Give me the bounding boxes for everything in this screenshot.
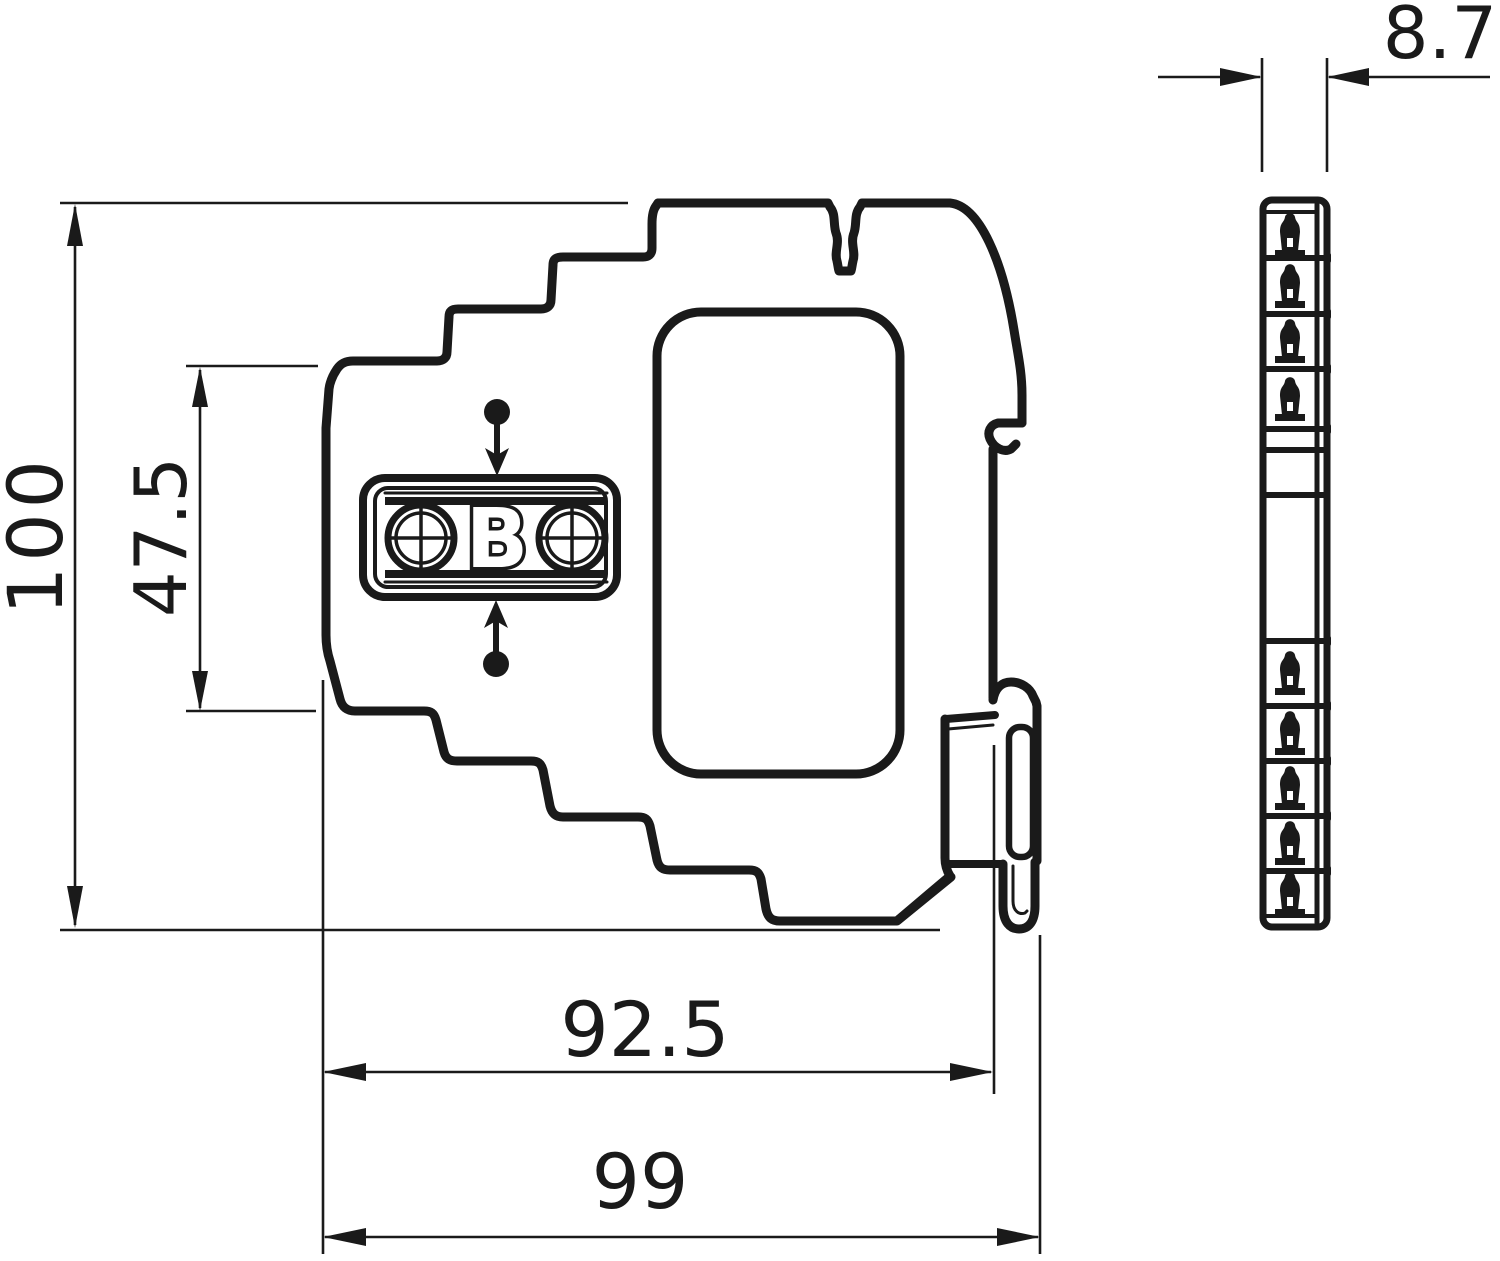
technical-drawing: 100 47.5 92.5 99 8.7 (0, 0, 1500, 1261)
dim-module-width-label: 8.7 (1383, 0, 1498, 75)
din-clip (898, 682, 1037, 929)
arrowhead-right-icon (997, 1228, 1040, 1246)
arrowhead-left-icon (323, 1063, 366, 1081)
drawing-canvas: 100 47.5 92.5 99 8.7 (0, 0, 1500, 1261)
insert-arrow-top (484, 399, 510, 476)
label-field (657, 312, 900, 774)
screw-circle-right (539, 505, 605, 571)
front-view-terminal-markings (1275, 213, 1305, 916)
dimension-lines (60, 58, 1490, 1254)
din-clip-top-edge (946, 715, 995, 719)
arrowhead-right-icon (950, 1063, 993, 1081)
dim-overall-height-label: 100 (0, 455, 80, 615)
arrowhead-down-icon (192, 671, 208, 711)
dim-upper-height-label: 47.5 (119, 457, 203, 617)
arrowhead-down-icon (67, 886, 83, 928)
front-view (1263, 200, 1331, 927)
din-hook (1003, 862, 1035, 929)
dim-body-width-label: 92.5 (560, 985, 729, 1074)
insert-arrow-bottom (483, 600, 509, 677)
arrowhead-up-icon (192, 367, 208, 407)
din-hook-inner (1013, 866, 1027, 914)
screw-circle-left (388, 505, 454, 571)
arrowhead-left-icon (1327, 68, 1369, 86)
din-clip-spring-slot (1009, 727, 1033, 857)
arrowhead-up-icon (67, 204, 83, 246)
dim-overall-width-label: 99 (592, 1137, 689, 1226)
arrowhead-left-icon (323, 1228, 366, 1246)
din-clip-top-edge-inner (948, 725, 993, 729)
arrowhead-right-icon (1220, 68, 1262, 86)
logo-letter: B (466, 492, 529, 587)
